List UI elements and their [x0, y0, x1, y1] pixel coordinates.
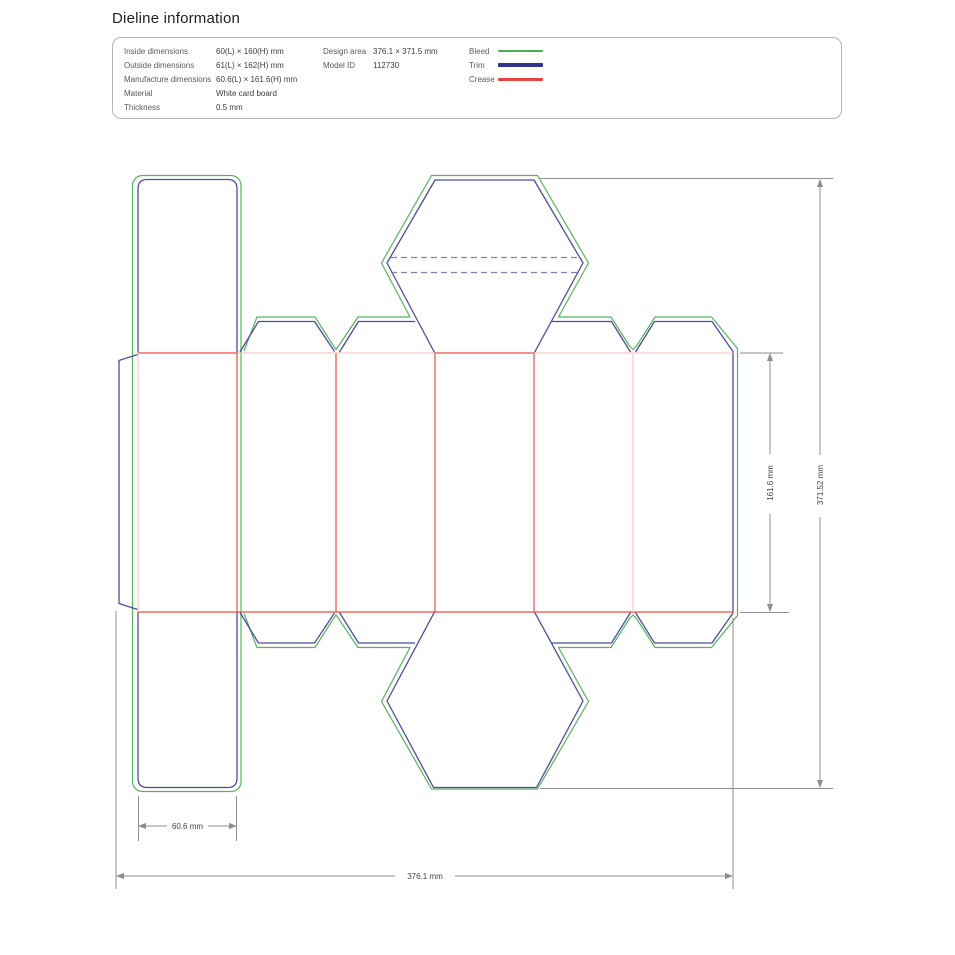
dieline-viewer: { "title": "Dieline information", "info_… [0, 0, 955, 955]
crease-lines [138, 353, 733, 612]
band-height-label: 161.6 mm [766, 465, 775, 501]
dimension-lines [116, 179, 833, 890]
total-width-label: 376.1 mm [407, 872, 443, 881]
top-hexagon-flap [387, 180, 583, 353]
tear-strip-perforation [391, 258, 581, 273]
left-column-top [138, 180, 237, 353]
dust-flap-bottom-2 [340, 613, 416, 644]
dust-flap-bottom-3 [551, 613, 631, 644]
dust-flap-top-2 [340, 322, 416, 353]
dieline-drawing: 161.6 mm 371.52 mm 60.6 mm 376.1 mm [0, 0, 955, 955]
panel-width-label: 60.6 mm [172, 822, 203, 831]
body-top-bleed [244, 176, 738, 790]
trim-lines [119, 180, 733, 788]
left-column-bleed [133, 176, 242, 792]
dimension-arrowheads [116, 179, 823, 879]
total-height-label: 371.52 mm [816, 465, 825, 505]
dust-flap-top-3 [551, 322, 631, 353]
dimension-labels: 161.6 mm 371.52 mm 60.6 mm 376.1 mm [172, 465, 825, 881]
left-column-bottom [138, 612, 237, 788]
glue-flap [119, 355, 138, 610]
